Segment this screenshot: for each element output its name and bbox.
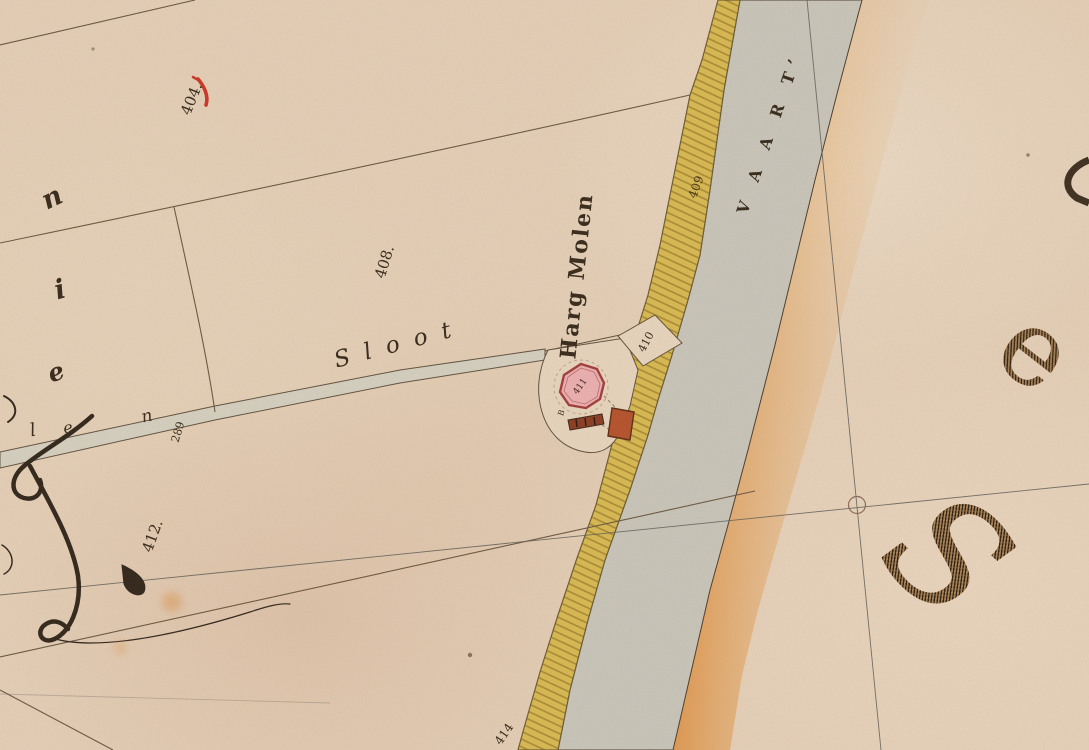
map-canvas[interactable]: V A A R T’ Sloot Harg Molen 404. 408. 40…	[0, 0, 1089, 750]
